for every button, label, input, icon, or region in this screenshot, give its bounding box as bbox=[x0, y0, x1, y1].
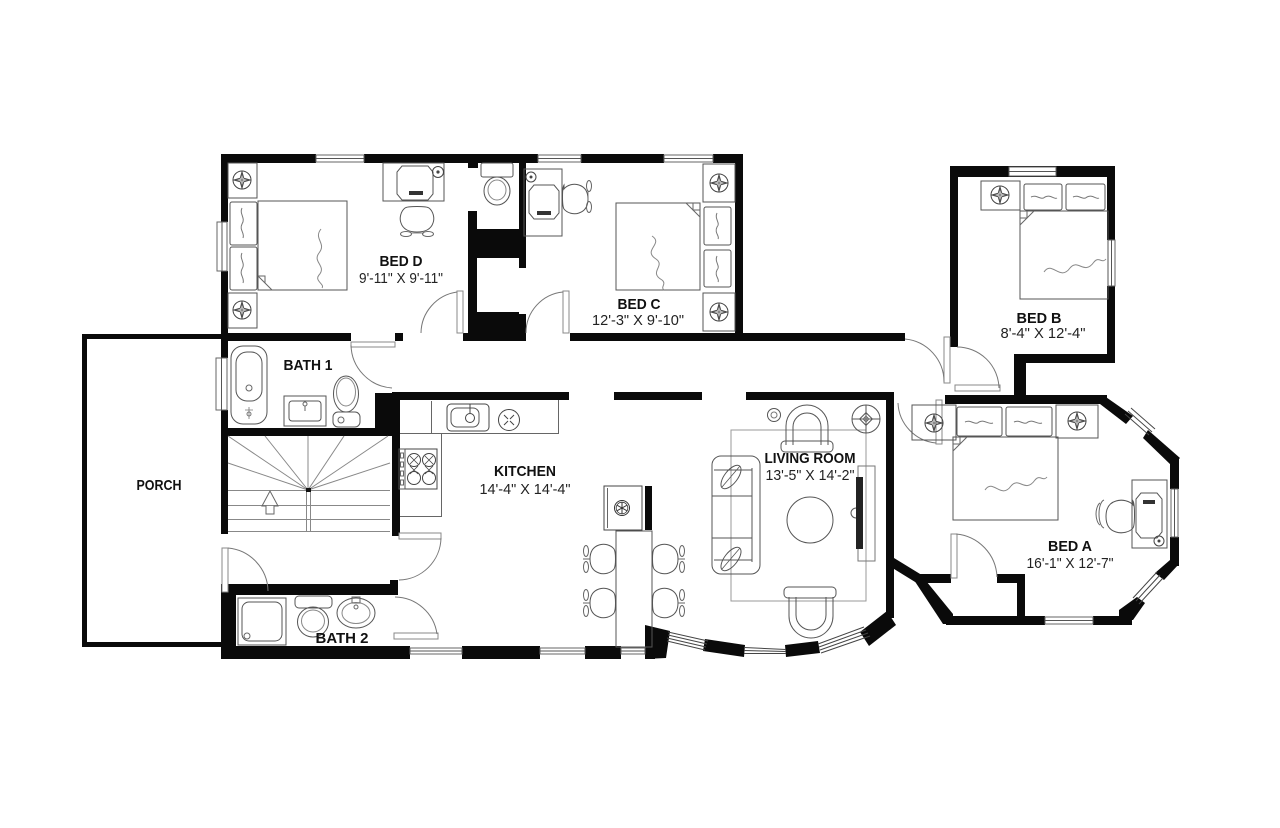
svg-text:BED C: BED C bbox=[618, 296, 661, 313]
svg-text:BATH 2: BATH 2 bbox=[316, 630, 369, 647]
svg-text:KITCHEN: KITCHEN bbox=[494, 463, 556, 480]
svg-text:8'-4" X 12'-4": 8'-4" X 12'-4" bbox=[1001, 325, 1086, 342]
svg-text:12'-3" X 9'-10": 12'-3" X 9'-10" bbox=[592, 312, 684, 329]
svg-text:16'-1" X 12'-7": 16'-1" X 12'-7" bbox=[1027, 555, 1114, 572]
svg-text:BED D: BED D bbox=[380, 253, 423, 270]
svg-text:BATH 1: BATH 1 bbox=[284, 357, 333, 374]
svg-text:14'-4" X 14'-4": 14'-4" X 14'-4" bbox=[480, 481, 571, 498]
svg-text:BED A: BED A bbox=[1048, 538, 1092, 555]
svg-text:LIVING ROOM: LIVING ROOM bbox=[765, 450, 856, 467]
svg-text:9'-11" X 9'-11": 9'-11" X 9'-11" bbox=[359, 270, 443, 287]
svg-text:PORCH: PORCH bbox=[137, 477, 182, 494]
svg-text:13'-5" X 14'-2": 13'-5" X 14'-2" bbox=[766, 467, 855, 484]
